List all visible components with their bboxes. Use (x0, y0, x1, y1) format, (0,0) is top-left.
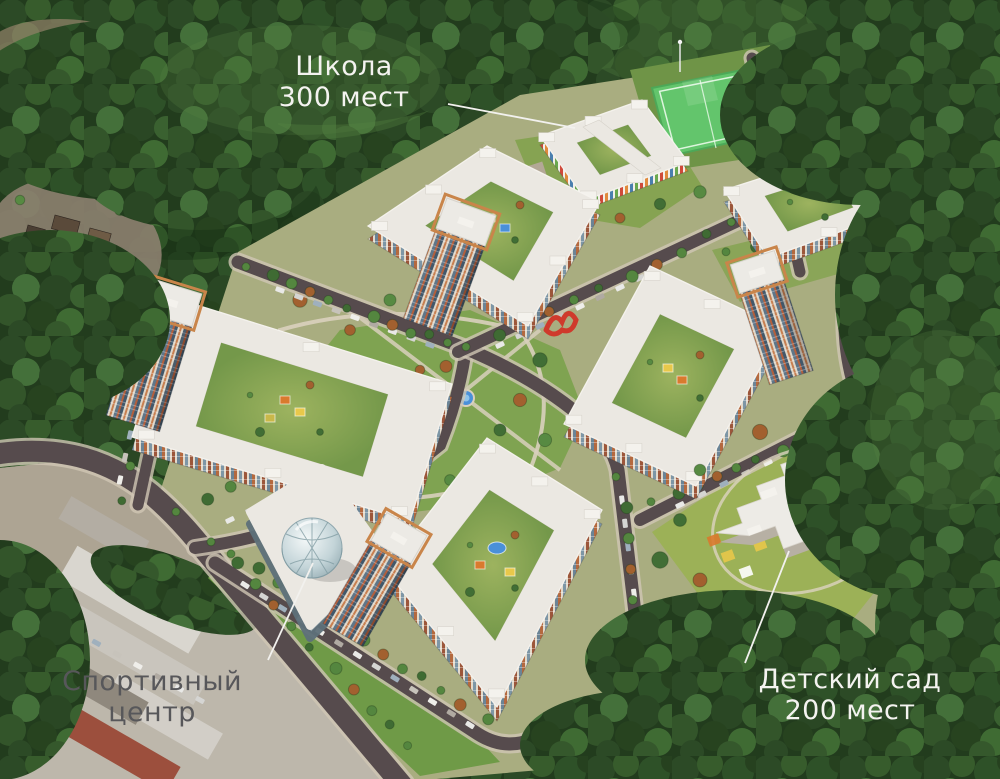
masterplan-image: Школа 300 мест Спортивный центр Детский … (0, 0, 1000, 779)
geodesic-dome (282, 518, 342, 578)
masterplan-render (0, 0, 1000, 779)
